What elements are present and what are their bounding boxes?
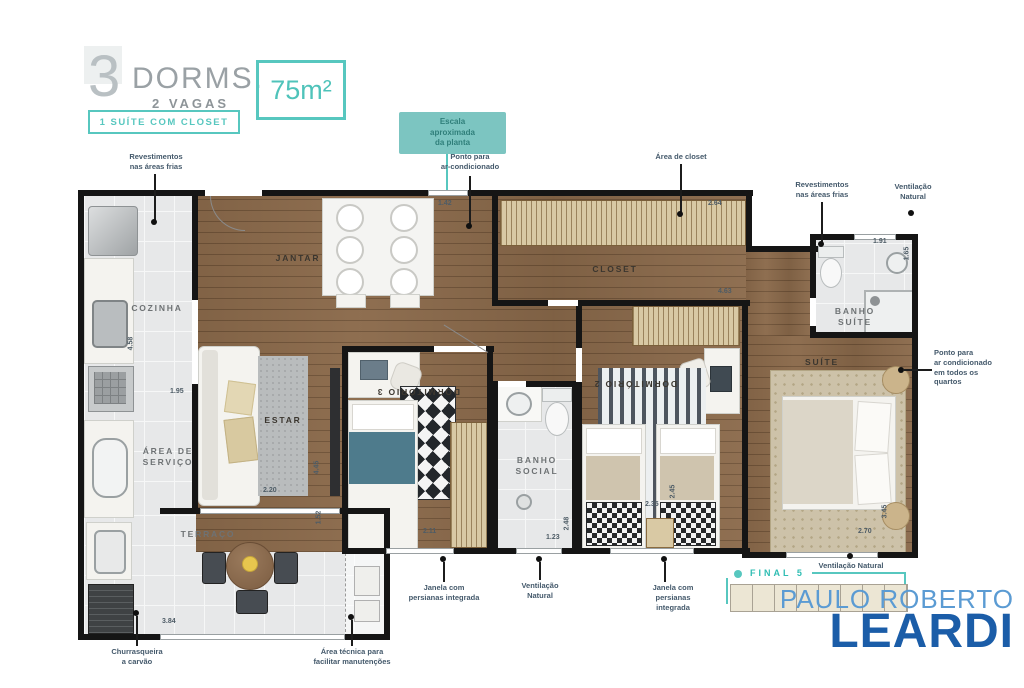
annotation-revestimentos-left: Revestimentos nas áreas frias [106,152,206,172]
window [786,552,878,558]
dim-label: 2.35 [645,501,659,508]
room-label-suite: SUÍTE [782,357,862,368]
dim-label: 1.23 [546,534,560,541]
bedroom2-bed-right-pillow [660,428,716,454]
annotation-churrasqueira: Churrasqueira a carvão [87,647,187,667]
dim-label: 2.45 [669,485,676,499]
room-label-jantar: JANTAR [258,253,338,264]
dim-label: 2.11 [423,528,436,535]
room-label-dorm2: DORMITÓRIO 2 [575,378,695,389]
leader-line [680,164,682,212]
suite-bath-door-gap [810,298,816,326]
dim-label: 3.45 [881,505,888,519]
leader-line [821,202,823,242]
dim-label: 2.70 [858,528,872,535]
dim-label: 3.84 [162,618,176,625]
annotation-ar-condicionado-top: Ponto para ar-condicionado [420,152,520,172]
wall [492,381,498,554]
terrace-chair-left [202,552,226,584]
social-bath-sink [506,392,532,416]
dim-label: 2.48 [563,517,570,531]
suite-badge: 1 SUÍTE COM CLOSET [88,110,240,134]
terrace-chair-right [274,552,298,584]
leader-dot [440,556,446,562]
fridge [88,206,138,256]
wall [810,332,918,338]
scale-callout: Escala aproximada da planta [399,112,506,154]
suite-toilet-tank [818,246,844,258]
dining-plate [390,236,418,264]
dim-label: 2.64 [708,200,722,207]
wall [912,234,918,558]
dining-plate [390,204,418,232]
annotation-area-closet: Área de closet [631,152,731,162]
leader-dot [908,210,914,216]
final-label: FINAL 5 [750,568,805,578]
sofa-cushion [224,380,256,416]
wall [746,190,752,252]
charcoal-grill [88,584,134,634]
terrace-chair-bottom [236,590,268,614]
bedroom2-nightstand [646,518,674,548]
room-label-cozinha: COZINHA [117,303,197,314]
suite-pillow [854,453,891,505]
room-label-closet: CLOSET [575,264,655,275]
dining-chair [390,294,420,308]
bedroom2-door-gap [576,348,582,382]
closet-door-gap [548,300,578,306]
annotation-ar-condicionado-quartos: Ponto para ar condicionado em todos os q… [934,348,1014,387]
room-label-terraco: TERRAÇO [168,529,248,540]
leader-dot [133,610,139,616]
room-label-banho-social: BANHO SOCIAL [507,455,567,477]
dorms-label: DORMS. [132,62,264,96]
dim-label: 1.42 [438,200,452,207]
area-box: 75m² [256,60,346,120]
leader-line [136,616,138,646]
wall [576,300,582,554]
leader-dot [818,241,824,247]
room-label-banho-suite: BANHO SUÍTE [825,306,885,328]
leader-dot [466,223,472,229]
vagas-label: 2 VAGAS [152,96,229,111]
bedroom2-bed-left-pillow [586,428,642,454]
leader-line [664,562,666,582]
dining-plate [390,268,418,296]
wall [342,346,348,554]
closet-ext-floor [746,250,812,336]
dining-plate [336,236,364,264]
technical-equipment [354,600,380,622]
room-label-estar: ESTAR [243,415,323,426]
dim-label: 1.91 [873,238,887,245]
laundry-tank-basin [94,530,126,574]
dining-chair [336,294,366,308]
dorms-number: 3 [88,48,120,106]
suite-toilet-bowl [820,258,842,288]
terrace-window [160,634,345,640]
dim-label: 2.20 [263,487,277,494]
terrace-plate [242,556,258,572]
bedroom2-bed-left-blanket [586,456,640,500]
dining-plate [336,204,364,232]
shower-head [516,494,532,510]
room-label-dorm3: DORMITÓRIO 3 [358,386,478,397]
annotation-ventilacao-bottom: Ventilação Natural [505,581,575,601]
dim-label: 4.45 [313,461,320,475]
dim-label: 1.52 [315,511,322,525]
window [516,548,562,554]
logo-name-bottom: LEARDI [700,608,1014,656]
room-label-servico: ÁREA DE SERVIÇO [128,446,208,468]
tv-console [330,368,340,496]
dim-label: 1.95 [170,388,184,395]
bedroom2-monitor [710,366,732,392]
annotation-revestimentos-right: Revestimentos nas áreas frias [772,180,872,200]
social-toilet-bowl [545,402,569,436]
bedroom3-laptop [360,360,388,380]
suite-shower-head [870,296,880,306]
suite-pillow [854,401,891,453]
leader-line [539,562,541,580]
suite-bed-blanket [783,400,853,504]
leader-dot [151,219,157,225]
bedroom2-wardrobe [632,306,740,346]
wall [384,508,390,640]
leader-dot [536,556,542,562]
leader-line [443,562,445,582]
wall [746,246,818,252]
bedroom3-pillow [352,404,414,430]
bedroom3-wardrobe [450,422,488,548]
wall [78,190,753,196]
leader-line [154,174,156,220]
cooktop-grate [94,372,126,404]
final-bracket-line [812,572,906,574]
sofa-backrest [202,350,218,500]
leader-line [904,369,932,371]
window [428,190,468,196]
annotation-ventilacao-suite: Ventilação Natural [791,561,911,571]
dim-label: 4.58 [127,337,134,351]
dining-plate [336,268,364,296]
service-sink [92,438,128,498]
leader-dot [348,614,354,620]
leader-dot [898,367,904,373]
leader-line [469,176,471,224]
bedroom2-bed-right-blanket [660,456,714,500]
dim-label: 4.63 [718,288,732,295]
wall [78,190,84,640]
leader-dot [677,211,683,217]
floorplan-page: 3 DORMS. 2 VAGAS 1 SUÍTE COM CLOSET 75m²… [0,0,1024,688]
leader-dot [661,556,667,562]
bedroom3-blanket [349,432,415,484]
final-marker-dot [734,570,742,578]
annotation-ventilacao-top: Ventilação Natural [883,182,943,202]
bedroom2-bed-left-throw [586,502,642,546]
annotation-janela-1: Janela com persianas integrada [394,583,494,603]
window [386,548,454,554]
leader-dot [847,553,853,559]
social-bath-door-gap [498,381,526,387]
annotation-area-tecnica: Área técnica para facilitar manutenções [287,647,417,667]
technical-equipment [354,566,380,596]
wall [492,300,750,306]
leader-line [351,620,353,646]
wall [492,190,498,306]
dim-label: 1.65 [903,247,910,261]
social-toilet-tank [542,388,572,402]
wall [742,300,748,558]
window [610,548,694,554]
